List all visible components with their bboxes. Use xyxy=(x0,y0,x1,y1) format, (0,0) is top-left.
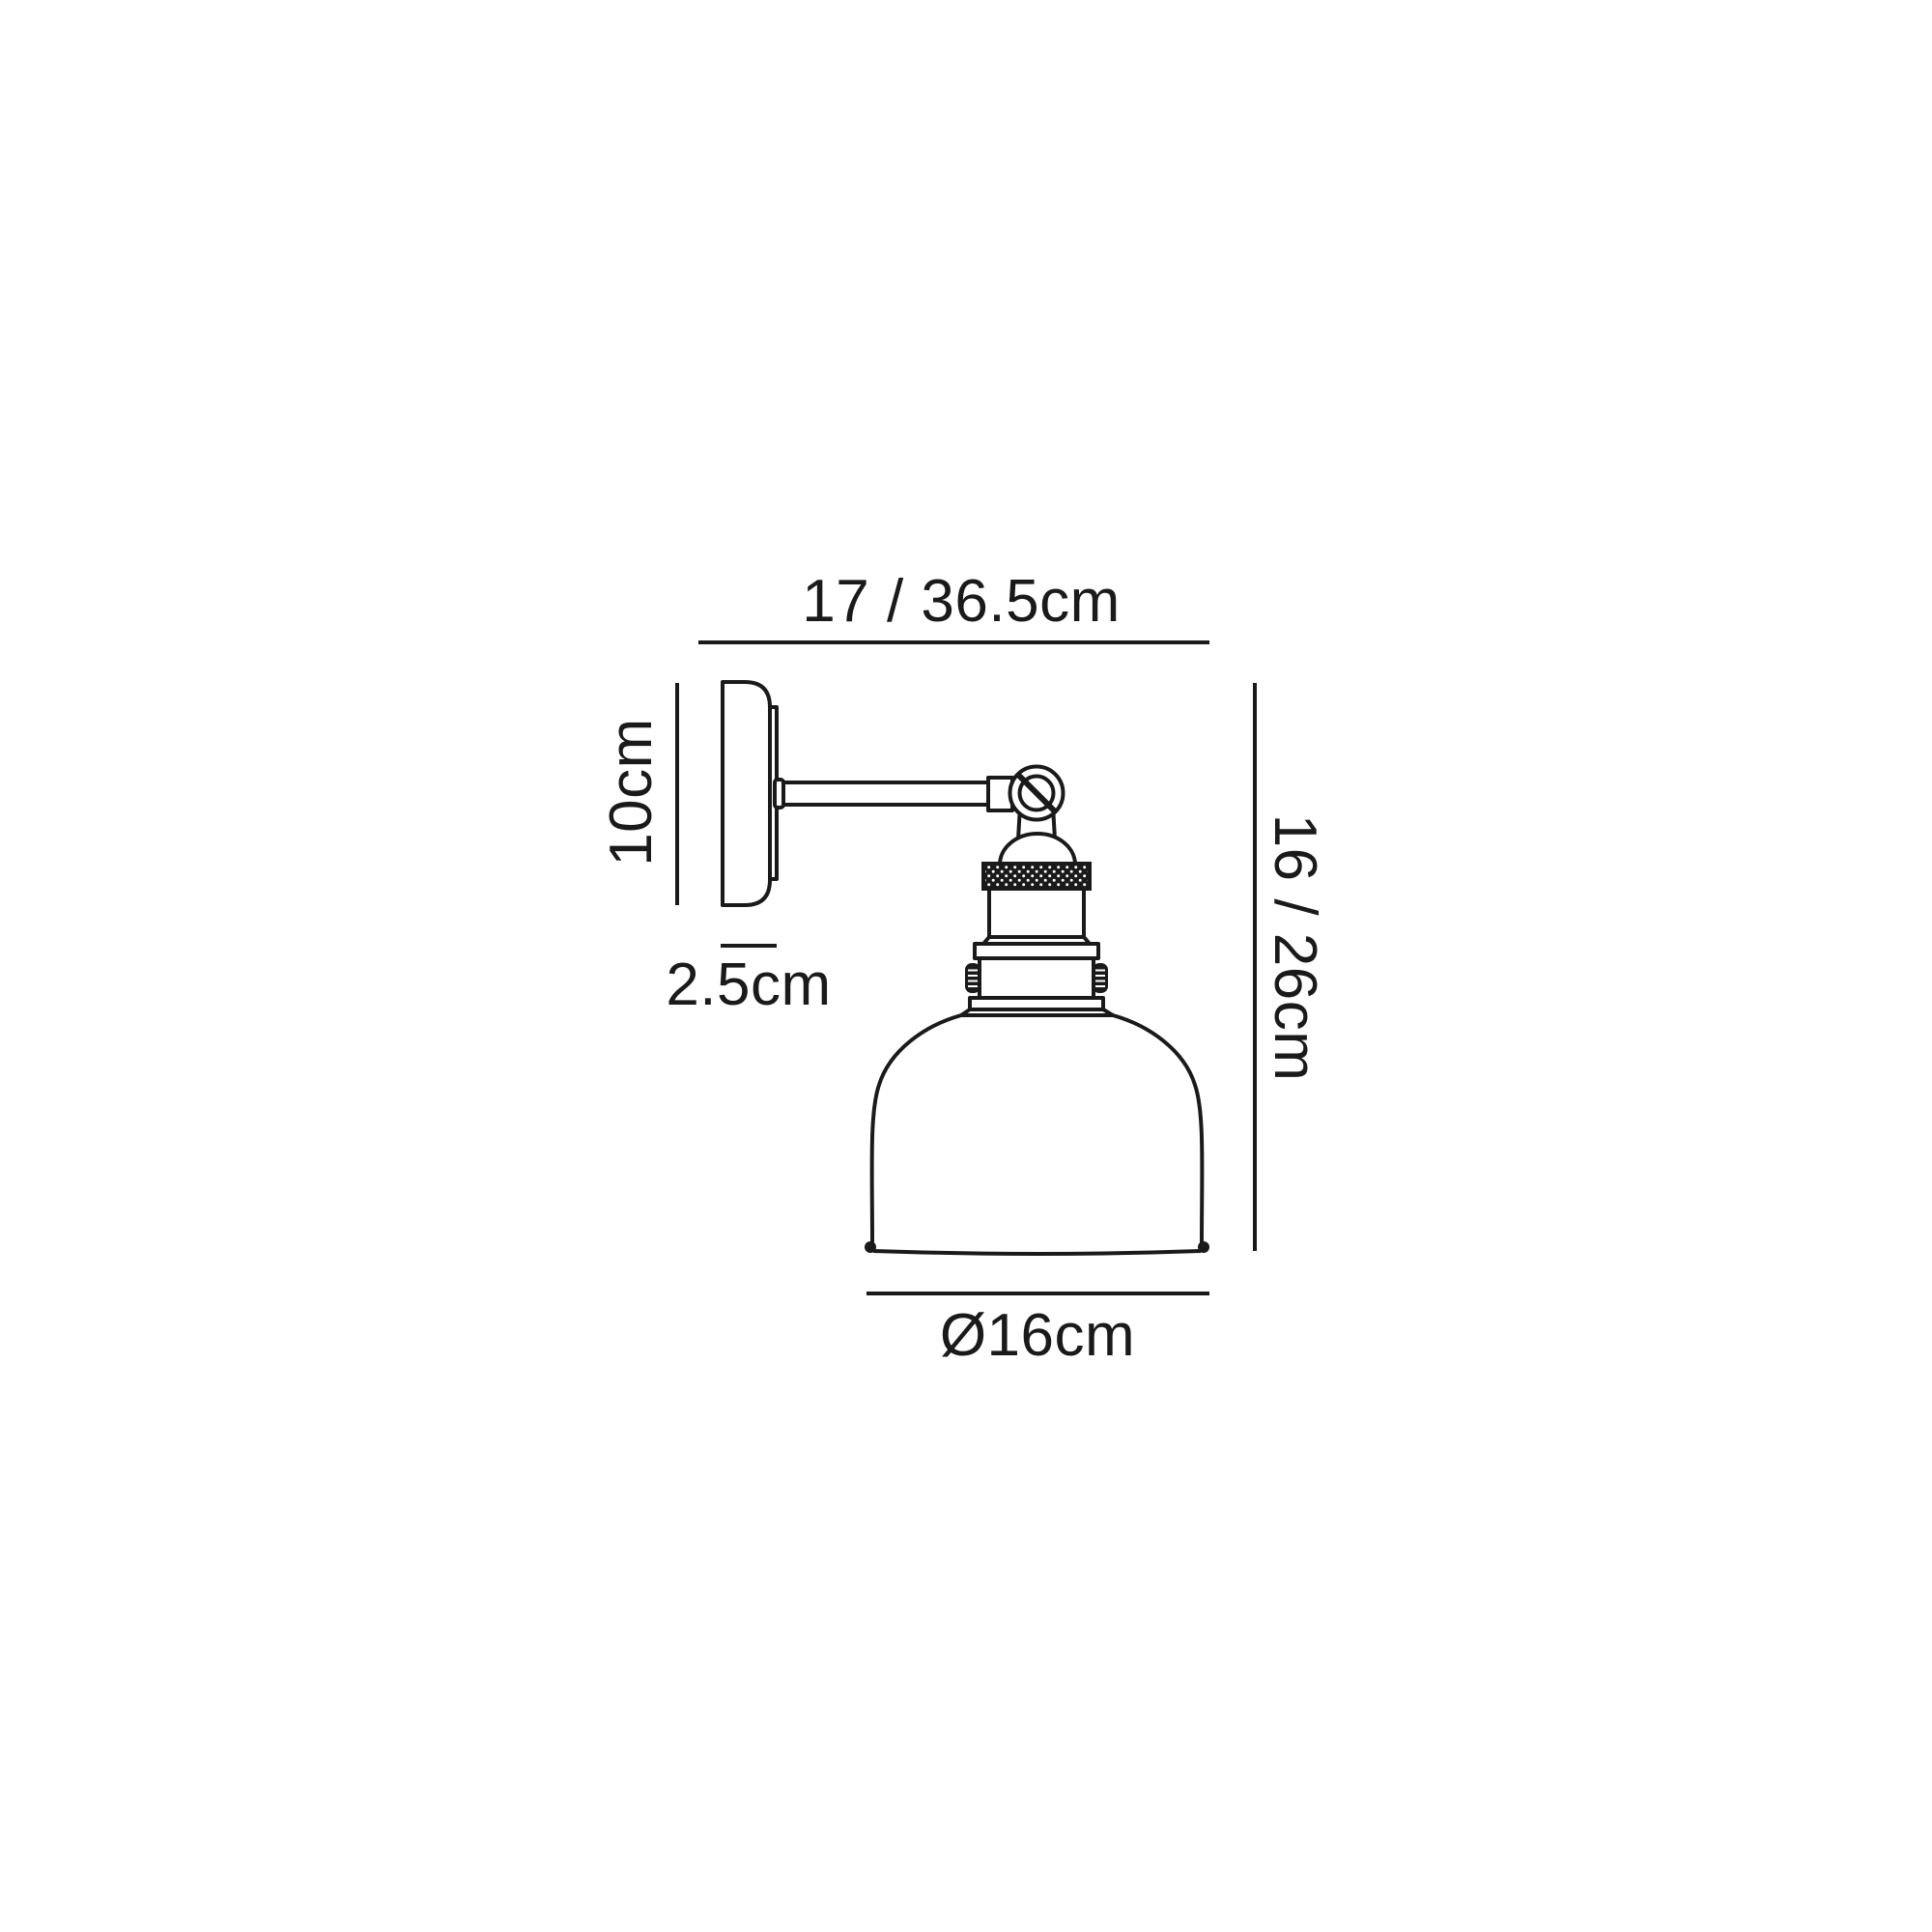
wall-backplate xyxy=(723,682,770,905)
dome-shade xyxy=(872,1015,1203,1244)
holder-flange-lower xyxy=(970,998,1103,1009)
shade-rolled-lip-right xyxy=(1198,1241,1209,1253)
dim-label-width-top: 17 / 36.5cm xyxy=(802,568,1120,635)
holder-gripper-block xyxy=(980,958,1094,998)
dimension-diagram-page: 17 / 36.5cm 10cm 2.5cm 16 / 26cm Ø16cm xyxy=(0,0,1932,1932)
holder-flange-upper xyxy=(975,944,1098,958)
shade-bottom-rim xyxy=(873,1251,1201,1254)
mounting-arm xyxy=(783,782,988,805)
lamp-holder-dome xyxy=(1000,834,1075,865)
dim-label-backplate-depth: 2.5cm xyxy=(666,952,831,1018)
shade-rolled-lip-left xyxy=(865,1241,876,1253)
wall-light-dimension-diagram: 17 / 36.5cm 10cm 2.5cm 16 / 26cm Ø16cm xyxy=(0,0,1932,1932)
dim-label-height-right: 16 / 26cm xyxy=(1262,814,1328,1082)
dimension-annotations: 17 / 36.5cm 10cm 2.5cm 16 / 26cm Ø16cm xyxy=(598,568,1328,1369)
lamp-holder-body xyxy=(989,889,1084,937)
knurled-ring xyxy=(983,864,1090,889)
dim-label-backplate-height: 10cm xyxy=(598,718,665,867)
dim-label-shade-diameter: Ø16cm xyxy=(940,1302,1135,1369)
